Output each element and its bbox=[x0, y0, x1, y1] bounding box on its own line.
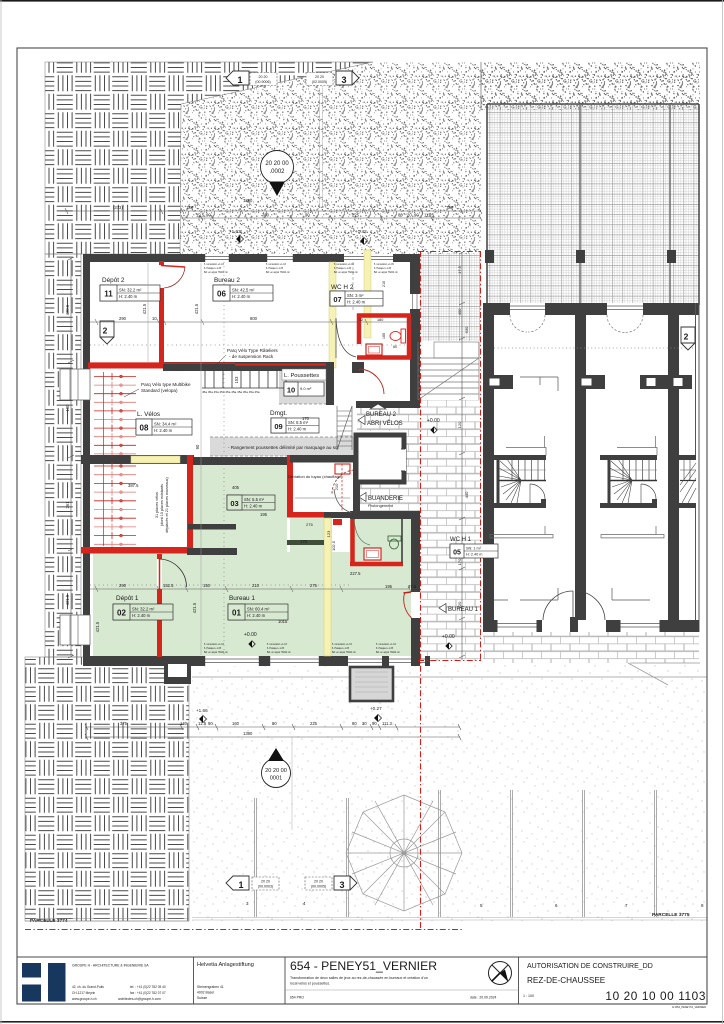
svg-text:42, ch. du Grand-Puits: 42, ch. du Grand-Puits bbox=[72, 985, 104, 989]
svg-text:111.3: 111.3 bbox=[382, 721, 393, 726]
svg-text:Helvetia Anlagestiftung: Helvetia Anlagestiftung bbox=[197, 962, 254, 968]
svg-text:20 20: 20 20 bbox=[315, 75, 324, 79]
svg-text:1: 1 bbox=[237, 75, 242, 85]
svg-text:(00.0005): (00.0005) bbox=[311, 885, 326, 889]
svg-text:BA: en appui 78x64 cm: BA: en appui 78x64 cm bbox=[204, 271, 228, 274]
svg-text:Dmgt.: Dmgt. bbox=[270, 410, 287, 417]
svg-text:361: 361 bbox=[65, 501, 70, 509]
svg-text:760: 760 bbox=[262, 213, 270, 218]
svg-text:165: 165 bbox=[382, 333, 386, 339]
svg-text:20 20 00: 20 20 00 bbox=[265, 768, 287, 774]
svg-text:6. Parapet +1.25: 6. Parapet +1.25 bbox=[204, 267, 222, 270]
svg-text:BA: en appui 78x64 cm: BA: en appui 78x64 cm bbox=[204, 651, 228, 654]
svg-text:BA: en appui 78x64 cm: BA: en appui 78x64 cm bbox=[376, 651, 400, 654]
svg-text:5. rénovation +1.43: 5. rénovation +1.43 bbox=[204, 263, 224, 266]
svg-text:90: 90 bbox=[372, 721, 377, 726]
svg-text:275: 275 bbox=[310, 583, 318, 588]
svg-text:Parq Vélo Type Râteliers: Parq Vélo Type Râteliers bbox=[227, 348, 278, 353]
svg-text:20 20 00: 20 20 00 bbox=[265, 161, 289, 167]
svg-text:210: 210 bbox=[252, 583, 260, 588]
svg-text:20 20: 20 20 bbox=[259, 75, 268, 79]
svg-text:06: 06 bbox=[217, 290, 226, 299]
svg-text:www.groupe-h.ch: www.groupe-h.ch bbox=[72, 997, 97, 1001]
svg-text:BA: en appui 78x64 cm: BA: en appui 78x64 cm bbox=[266, 271, 290, 274]
svg-text:H: 2.40 m: H: 2.40 m bbox=[154, 428, 173, 433]
svg-text:BA: en appui 78x64 cm: BA: en appui 78x64 cm bbox=[332, 651, 356, 654]
svg-text:227.5: 227.5 bbox=[350, 571, 361, 576]
svg-text:SN: 1 m²: SN: 1 m² bbox=[466, 547, 482, 551]
svg-text:PARCELLE 3775: PARCELLE 3775 bbox=[652, 912, 690, 918]
svg-text:Bureau 1: Bureau 1 bbox=[229, 595, 255, 602]
svg-text:10: 10 bbox=[152, 316, 157, 321]
svg-text:654 PRO: 654 PRO bbox=[290, 996, 304, 1000]
svg-text:10: 10 bbox=[287, 386, 295, 395]
svg-text:225: 225 bbox=[310, 721, 318, 726]
svg-text:SN: 42.5 m²: SN: 42.5 m² bbox=[232, 288, 255, 293]
svg-text:BA: en appui 78x64 cm: BA: en appui 78x64 cm bbox=[267, 651, 291, 654]
svg-text:6. Parapet +1.25: 6. Parapet +1.25 bbox=[374, 267, 392, 270]
svg-text:5. rénovation +1.43: 5. rénovation +1.43 bbox=[267, 643, 287, 646]
svg-text:225: 225 bbox=[352, 213, 360, 218]
svg-text:L. Vélos: L. Vélos bbox=[137, 411, 160, 418]
svg-text:(dont 10 places existants: (dont 10 places existants bbox=[160, 484, 164, 526]
svg-text:(00.0003): (00.0003) bbox=[258, 885, 273, 889]
svg-text:6. Parapet +1.25: 6. Parapet +1.25 bbox=[266, 267, 284, 270]
svg-text:H: 2.40 m: H: 2.40 m bbox=[466, 553, 482, 557]
svg-text:09: 09 bbox=[274, 422, 282, 431]
svg-text:(02.0005): (02.0005) bbox=[312, 80, 327, 84]
svg-text:111.3: 111.3 bbox=[424, 213, 435, 218]
svg-text:1 : 100: 1 : 100 bbox=[523, 994, 534, 998]
svg-text:Steinengraben 41: Steinengraben 41 bbox=[197, 985, 224, 989]
svg-text:290: 290 bbox=[119, 583, 127, 588]
svg-text:ABRI VÉLOS: ABRI VÉLOS bbox=[367, 420, 403, 427]
svg-text:(373): (373) bbox=[113, 205, 123, 210]
svg-text:local vélos et poussettes.: local vélos et poussettes. bbox=[290, 982, 330, 986]
svg-text:20: 20 bbox=[407, 213, 412, 218]
svg-text:80: 80 bbox=[352, 721, 357, 726]
svg-text:6. Parapet +1.25: 6. Parapet +1.25 bbox=[204, 647, 222, 650]
svg-text:421.5: 421.5 bbox=[192, 602, 197, 613]
svg-text:170: 170 bbox=[457, 558, 462, 565]
svg-text:- de suspension Rack: - de suspension Rack bbox=[229, 354, 274, 359]
svg-text:L. Poussettes: L. Poussettes bbox=[284, 373, 319, 379]
svg-text:421.5: 421.5 bbox=[65, 594, 70, 605]
svg-text:E:\654_PENEY51_VERNIER: E:\654_PENEY51_VERNIER bbox=[672, 1005, 706, 1009]
svg-text:11: 11 bbox=[104, 290, 113, 299]
svg-text:SN: 32.2 m²: SN: 32.2 m² bbox=[132, 607, 155, 612]
svg-text:date : 20.09.2024: date : 20.09.2024 bbox=[470, 996, 497, 1000]
svg-text:WC H 2: WC H 2 bbox=[331, 284, 354, 291]
svg-text:20 20: 20 20 bbox=[314, 880, 323, 884]
svg-text:90: 90 bbox=[414, 213, 419, 218]
svg-text:195: 195 bbox=[385, 584, 393, 589]
svg-text:+1.66: +1.66 bbox=[196, 708, 208, 713]
svg-text:(00.9006): (00.9006) bbox=[255, 80, 270, 84]
svg-text:tel. : +41 (0)22 782 05 40: tel. : +41 (0)22 782 05 40 bbox=[130, 985, 166, 989]
svg-text:H: 2.40 m: H: 2.40 m bbox=[288, 427, 307, 432]
svg-text:Standard (velopa): Standard (velopa) bbox=[141, 388, 178, 393]
svg-text:CH-1217 Meyrin: CH-1217 Meyrin bbox=[72, 991, 95, 995]
svg-text:421.5: 421.5 bbox=[194, 303, 199, 314]
svg-text:Déviation du tuyau (chauffage): Déviation du tuyau (chauffage) bbox=[288, 474, 343, 479]
svg-text:150: 150 bbox=[203, 583, 211, 588]
svg-text:210: 210 bbox=[334, 483, 339, 490]
svg-text:421.5: 421.5 bbox=[142, 303, 147, 314]
svg-text:45a 45a 45a 45a 45a 45a 45a 45: 45a 45a 45a 45a 45a 45a 45a 45a 45a 45a bbox=[202, 390, 260, 394]
svg-text:90: 90 bbox=[305, 213, 310, 218]
svg-text:BA: en appui 78x64 cm: BA: en appui 78x64 cm bbox=[374, 271, 398, 274]
svg-text:800: 800 bbox=[250, 316, 258, 321]
svg-text:17.5: 17.5 bbox=[457, 265, 462, 274]
svg-text:12: 12 bbox=[359, 318, 363, 322]
svg-text:Parq Vélo type Multibike: Parq Vélo type Multibike bbox=[141, 382, 191, 387]
svg-text:20 20: 20 20 bbox=[261, 880, 270, 884]
svg-text:05: 05 bbox=[453, 550, 461, 557]
svg-text:WC H 1: WC H 1 bbox=[450, 537, 472, 543]
svg-text:07: 07 bbox=[333, 295, 341, 304]
svg-text:+0.00: +0.00 bbox=[244, 632, 257, 638]
svg-text:5. rénovation +1.43: 5. rénovation +1.43 bbox=[334, 263, 354, 266]
svg-text:153: 153 bbox=[234, 376, 239, 384]
svg-text:H: 2.40 m: H: 2.40 m bbox=[132, 613, 151, 618]
svg-text:Transformation de deux salles: Transformation de deux salles de jeux au… bbox=[290, 976, 428, 980]
svg-text:H: 2.40 m: H: 2.40 m bbox=[247, 613, 266, 618]
svg-text:0001: 0001 bbox=[270, 776, 282, 782]
svg-text:387.5: 387.5 bbox=[128, 483, 139, 488]
svg-text:12.5: 12.5 bbox=[196, 213, 205, 218]
svg-text:6. Parapet +1.25: 6. Parapet +1.25 bbox=[376, 647, 394, 650]
svg-text:02: 02 bbox=[117, 609, 126, 618]
svg-text:3: 3 bbox=[341, 75, 346, 85]
svg-text:H: 2.40 m: H: 2.40 m bbox=[244, 504, 263, 509]
svg-text:421.5: 421.5 bbox=[95, 621, 100, 632]
svg-text:01: 01 bbox=[232, 609, 241, 618]
svg-text:10 20 10 00 1103: 10 20 10 00 1103 bbox=[605, 989, 706, 1003]
svg-text:+0.00: +0.00 bbox=[427, 418, 440, 424]
svg-text:5. rénovation +1.43: 5. rénovation +1.43 bbox=[266, 263, 286, 266]
svg-text:60: 60 bbox=[393, 345, 397, 349]
svg-text:180: 180 bbox=[377, 318, 383, 322]
svg-text:37.5: 37.5 bbox=[408, 584, 417, 589]
svg-text:750: 750 bbox=[446, 205, 454, 210]
svg-text:1: 1 bbox=[238, 880, 243, 890]
svg-text:BA: en appui 78x64 cm: BA: en appui 78x64 cm bbox=[334, 271, 358, 274]
svg-text:03: 03 bbox=[230, 499, 238, 508]
svg-text:6. Parapet +1.25: 6. Parapet +1.25 bbox=[334, 267, 352, 270]
svg-text:420.5: 420.5 bbox=[65, 304, 70, 315]
svg-text:architectes-ch@groupe-h.com: architectes-ch@groupe-h.com bbox=[118, 997, 161, 1001]
svg-text:170: 170 bbox=[300, 539, 308, 544]
svg-text:375: 375 bbox=[120, 721, 128, 726]
svg-text:1015: 1015 bbox=[278, 619, 288, 624]
svg-text:90: 90 bbox=[206, 213, 211, 218]
svg-text:630: 630 bbox=[464, 326, 469, 333]
svg-text:9.0 m²: 9.0 m² bbox=[300, 386, 312, 391]
svg-text:GROUPE H - ARCHITECTURE & INGE: GROUPE H - ARCHITECTURE & INGENIERIE SA bbox=[72, 964, 149, 968]
svg-text:275: 275 bbox=[306, 522, 313, 527]
svg-text:- Rangement poussettes délimit: - Rangement poussettes délimité par marq… bbox=[228, 445, 339, 450]
svg-text:1380: 1380 bbox=[243, 198, 253, 203]
svg-text:31 places vélos: 31 places vélos bbox=[155, 492, 159, 518]
svg-text:170: 170 bbox=[302, 416, 310, 421]
svg-text:.0002: .0002 bbox=[269, 169, 285, 175]
svg-text:Dépôt 1: Dépôt 1 bbox=[116, 595, 139, 602]
svg-text:Dépôt 2: Dépôt 2 bbox=[102, 277, 125, 284]
svg-text:290: 290 bbox=[119, 316, 127, 321]
svg-text:148: 148 bbox=[186, 205, 194, 210]
svg-text:6. Parapet +1.25: 6. Parapet +1.25 bbox=[332, 647, 350, 650]
svg-text:195: 195 bbox=[260, 512, 268, 517]
svg-text:H: 2.40 m: H: 2.40 m bbox=[347, 300, 366, 305]
svg-text:+1.42: +1.42 bbox=[355, 229, 367, 234]
svg-text:210: 210 bbox=[382, 281, 386, 287]
svg-text:2: 2 bbox=[684, 332, 689, 342]
svg-text:REZ-DE-CHAUSSEE: REZ-DE-CHAUSSEE bbox=[527, 976, 606, 985]
svg-text:SN: 3 m²: SN: 3 m² bbox=[347, 293, 364, 298]
svg-text:BUREAU 1: BUREAU 1 bbox=[448, 607, 479, 613]
svg-text:+1.63: +1.63 bbox=[229, 229, 241, 234]
svg-text:6. Parapet +1.25: 6. Parapet +1.25 bbox=[267, 647, 285, 650]
svg-text:3: 3 bbox=[339, 880, 344, 890]
svg-text:déplacés et 21 places nouveaux: déplacés et 21 places nouveaux) bbox=[165, 477, 169, 533]
svg-text:Suisse: Suisse bbox=[197, 996, 207, 1000]
svg-text:654 - PENEY51_VERNIER: 654 - PENEY51_VERNIER bbox=[290, 959, 437, 973]
svg-text:SN: 32.2 m²: SN: 32.2 m² bbox=[119, 288, 142, 293]
svg-text:BUREAU 2: BUREAU 2 bbox=[366, 412, 397, 418]
svg-text:152.5: 152.5 bbox=[163, 583, 174, 588]
svg-text:H: 2.40 m: H: 2.40 m bbox=[232, 294, 251, 299]
svg-text:440: 440 bbox=[464, 491, 469, 498]
svg-text:123: 123 bbox=[326, 530, 331, 537]
svg-text:80: 80 bbox=[398, 213, 403, 218]
svg-text:90: 90 bbox=[208, 721, 213, 726]
svg-text:+0.27: +0.27 bbox=[370, 706, 382, 711]
svg-text:90: 90 bbox=[272, 721, 277, 726]
svg-text:30: 30 bbox=[362, 721, 367, 726]
svg-text:SN: 5.5 m²: SN: 5.5 m² bbox=[244, 497, 265, 502]
svg-text:190: 190 bbox=[65, 404, 70, 412]
svg-text:140: 140 bbox=[180, 721, 188, 726]
svg-text:1390: 1390 bbox=[243, 731, 253, 736]
svg-text:102.5: 102.5 bbox=[331, 540, 336, 551]
svg-text:4002 Basel: 4002 Basel bbox=[197, 991, 214, 995]
svg-text:5. rénovation +1.43: 5. rénovation +1.43 bbox=[332, 643, 352, 646]
svg-text:90: 90 bbox=[195, 444, 200, 449]
svg-text:SN: 60.4 m²: SN: 60.4 m² bbox=[247, 607, 270, 612]
svg-text:5. rénovation +1.43: 5. rénovation +1.43 bbox=[376, 643, 396, 646]
svg-text:SN: 34.4 m²: SN: 34.4 m² bbox=[154, 422, 177, 427]
svg-text:405: 405 bbox=[232, 485, 240, 490]
svg-text:+0.00: +0.00 bbox=[442, 634, 455, 640]
svg-text:08: 08 bbox=[140, 424, 149, 433]
svg-text:AUTORISATION DE CONSTRUIRE_DD: AUTORISATION DE CONSTRUIRE_DD bbox=[527, 963, 653, 970]
svg-text:Prolongement: Prolongement bbox=[368, 503, 394, 508]
svg-text:Bureau 2: Bureau 2 bbox=[214, 277, 240, 284]
svg-text:fax : +41 (0)22 782 07 07: fax : +41 (0)22 782 07 07 bbox=[130, 991, 166, 995]
svg-text:160: 160 bbox=[232, 721, 240, 726]
svg-text:H: 2.40 m: H: 2.40 m bbox=[119, 294, 138, 299]
svg-text:2: 2 bbox=[103, 326, 108, 336]
svg-text:BUANDERIE: BUANDERIE bbox=[368, 496, 403, 502]
svg-text:5. rénovation +1.43: 5. rénovation +1.43 bbox=[204, 643, 224, 646]
svg-text:120: 120 bbox=[457, 421, 462, 428]
svg-text:5. rénovation +1.45: 5. rénovation +1.45 bbox=[374, 263, 394, 266]
svg-text:400: 400 bbox=[457, 308, 462, 315]
